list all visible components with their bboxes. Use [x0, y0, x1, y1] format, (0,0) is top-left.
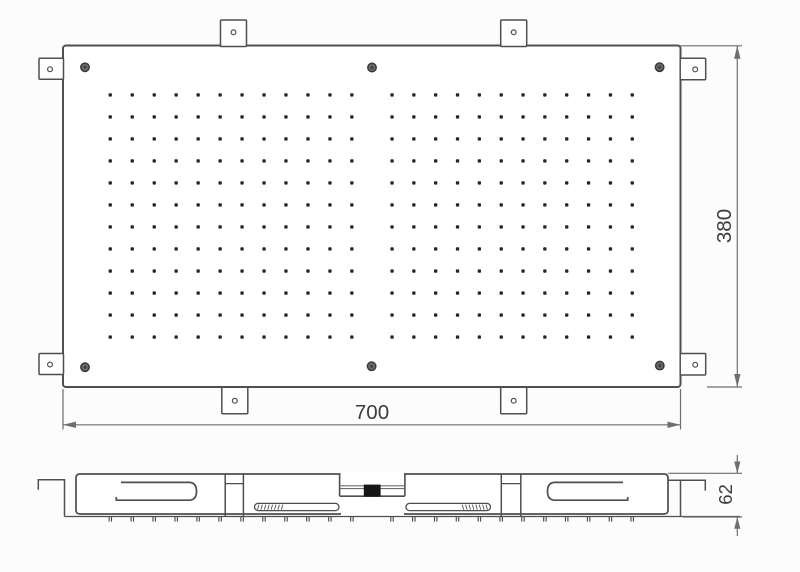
- svg-text:380: 380: [713, 209, 736, 243]
- svg-text:700: 700: [355, 401, 389, 424]
- svg-text:62: 62: [715, 484, 736, 505]
